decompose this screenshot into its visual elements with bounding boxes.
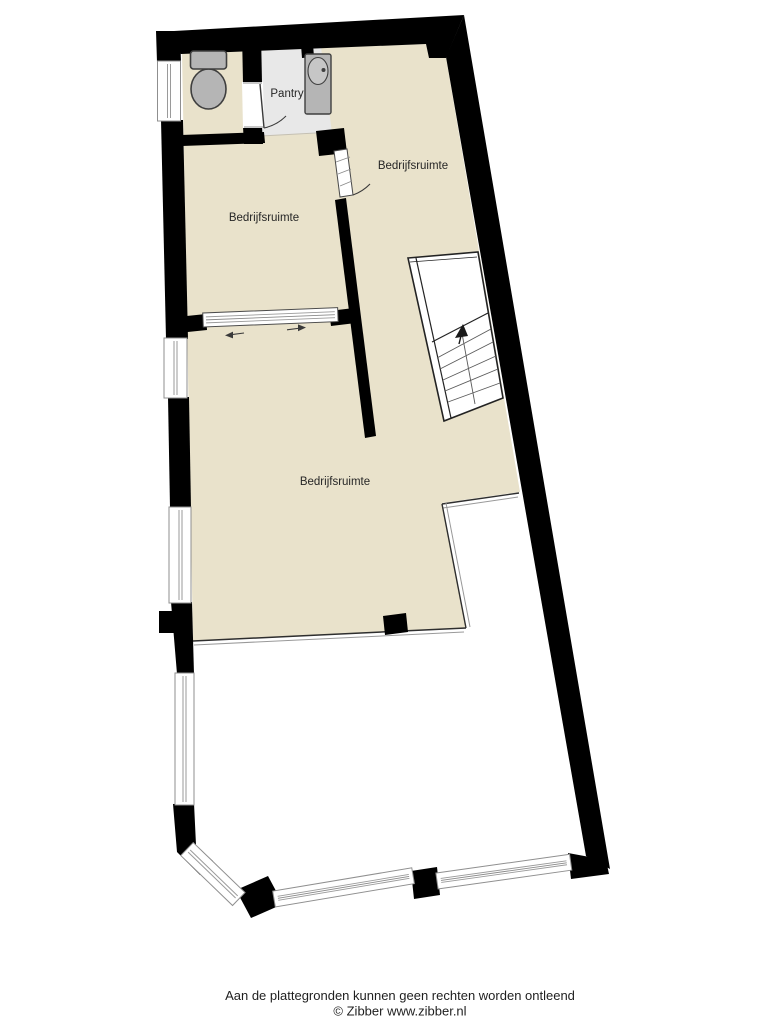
- toilet-cistern: [191, 51, 227, 69]
- sink-fixture: [305, 54, 331, 114]
- toilet-fixture: [191, 51, 227, 109]
- window: [181, 843, 245, 906]
- room-label-bedrijfsruimte-middle-left: Bedrijfsruimte: [229, 212, 299, 224]
- wall-pier-bottom-mid: [411, 867, 440, 899]
- window: [158, 61, 181, 121]
- window: [164, 338, 187, 398]
- room-label-bedrijfsruimte-top-right: Bedrijfsruimte: [378, 160, 448, 172]
- window: [436, 854, 572, 889]
- toilet-bowl: [191, 69, 226, 109]
- sink-faucet: [322, 68, 326, 72]
- wall-left-3: [168, 397, 191, 508]
- window: [273, 868, 415, 907]
- room-label-bedrijfsruimte-bottom: Bedrijfsruimte: [300, 476, 370, 488]
- floor-plan-svg: Pantry Bedrijfsruimte Bedrijfsruimte Bed…: [0, 0, 773, 1030]
- window: [169, 507, 191, 603]
- wall-left-step: [159, 611, 179, 633]
- window: [175, 673, 194, 805]
- floor-plan-page: Pantry Bedrijfsruimte Bedrijfsruimte Bed…: [0, 0, 773, 1030]
- wall-edge-stub: [383, 613, 408, 635]
- wall-wc-divider-top: [242, 33, 262, 83]
- wall-left-1: [156, 31, 181, 62]
- room-label-pantry: Pantry: [270, 88, 303, 100]
- footer-disclaimer: Aan de plattegronden kunnen geen rechten…: [225, 988, 575, 1003]
- footer-credit: © Zibber www.zibber.nl: [333, 1004, 466, 1019]
